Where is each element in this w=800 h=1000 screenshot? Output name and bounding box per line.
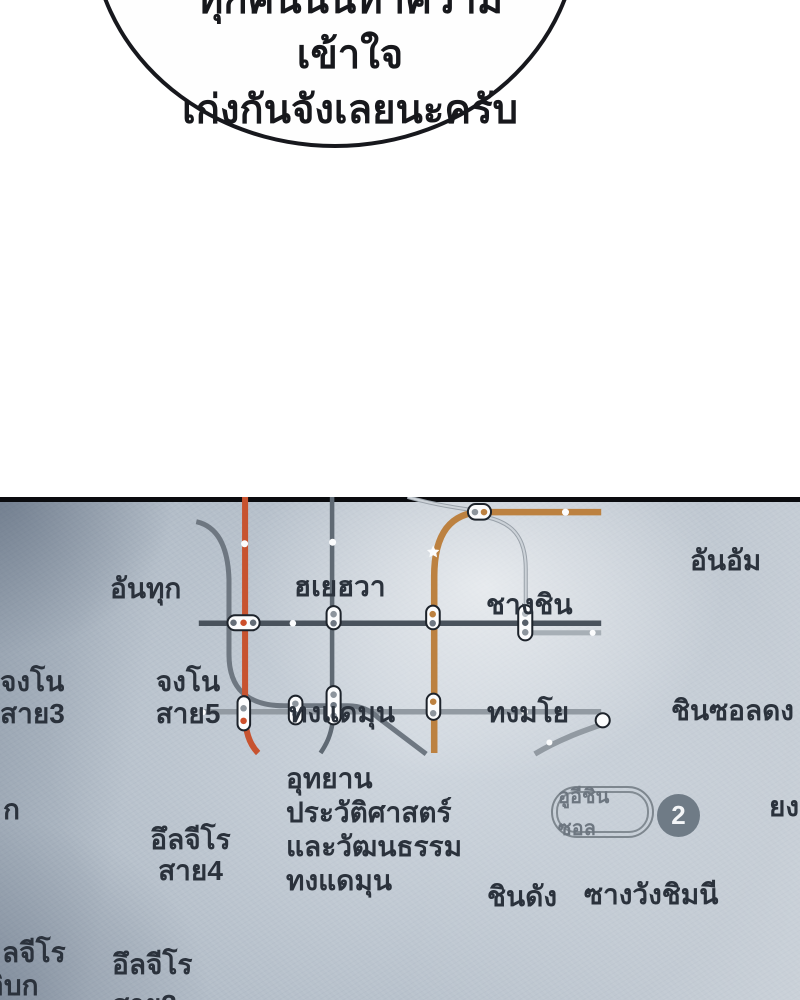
station-dot-jongno5	[290, 620, 297, 627]
sindang-dot-line6	[430, 698, 437, 705]
euljiro3-dot-line2	[240, 705, 247, 712]
sinseoldong-dot-line2	[522, 629, 529, 636]
jongno3-dot-line5	[230, 619, 237, 626]
station-dot-yongdu	[590, 630, 596, 636]
station-dot-anam	[562, 509, 569, 516]
station-label-ddp: อุทยาน ประวัติศาสตร์ และวัฒนธรรม ทงแดมุน	[286, 762, 462, 898]
station-label-ka-partial: ก	[3, 795, 20, 825]
station-circle-wangsimni	[596, 713, 610, 727]
uisinseol-line-badge: อูอีชินซอล	[551, 786, 654, 838]
subway-map: อันทุก ฮเยฮวา ชางชิน อันอัม จงโน สาย3 จง…	[0, 497, 800, 1000]
comic-panel: ทุกคนนั้นทำความเข้าใจ เก่งกันจังเลยนะครั…	[0, 0, 800, 1000]
bomun-dot-lrt	[472, 509, 479, 516]
line2-southeast-curve	[535, 725, 601, 754]
station-dot-curve-south	[546, 739, 552, 745]
station-label-left-partial-2: อิบก	[0, 971, 39, 1000]
station-label-sindang: ชินดัง	[487, 882, 557, 912]
station-capsule-euljiro3	[238, 696, 251, 730]
station-label-yongdu-partial: ยง	[769, 792, 799, 822]
dongmyo-dot-line1	[429, 620, 436, 627]
speech-line-2: เก่งกันจังเลยนะครับ	[150, 83, 550, 138]
station-label-changsin: ชางชิน	[486, 590, 573, 620]
speech-line-1: ทุกคนนั้นทำความเข้าใจ	[150, 0, 550, 83]
jongno3-dot-line1	[250, 619, 257, 626]
line2-number-badge: 2	[657, 794, 700, 837]
station-label-sinseoldong: ชินซอลดง	[671, 696, 794, 726]
dongdaemun-dot-line1	[330, 620, 337, 627]
station-label-jongno5: จงโน สาย5	[150, 666, 226, 730]
station-capsule-bomun	[468, 504, 491, 520]
station-label-anam: อันอัม	[690, 546, 761, 576]
speech-text: ทุกคนนั้นทำความเข้าใจ เก่งกันจังเลยนะครั…	[150, 0, 550, 138]
station-dot-hyehwa	[329, 539, 336, 546]
sindang-dot-line2	[430, 710, 437, 717]
station-dot-antuk	[241, 540, 248, 547]
jongno3-dot-line3	[240, 619, 247, 626]
dongmyo-dot-line6	[429, 611, 436, 618]
speech-panel: ทุกคนนั้นทำความเข้าใจ เก่งกันจังเลยนะครั…	[0, 0, 800, 497]
bomun-dot-line6	[481, 509, 488, 516]
station-label-hyehwa: ฮเยฮวา	[294, 572, 386, 602]
station-label-sangwangsimni: ซางวังชิมนี	[584, 880, 718, 910]
sinseoldong-dot-line1	[522, 619, 529, 626]
station-label-dongdaemun: ทงแดมุน	[289, 698, 395, 728]
station-label-dongmyo: ทงมโย	[487, 698, 569, 728]
euljiro3-dot-line3	[240, 718, 247, 725]
station-label-euljiro4: อึลจีโร สาย4	[148, 824, 233, 886]
station-label-jongno3: จงโน สาย3	[0, 666, 65, 730]
dongdaemun-dot-line4	[330, 611, 337, 618]
station-label-antuk: อันทุก	[110, 574, 181, 604]
station-label-euljiro3: อึลจีโร สาย3	[112, 945, 192, 1000]
station-label-left-partial-1: ลจีโร	[2, 938, 66, 968]
